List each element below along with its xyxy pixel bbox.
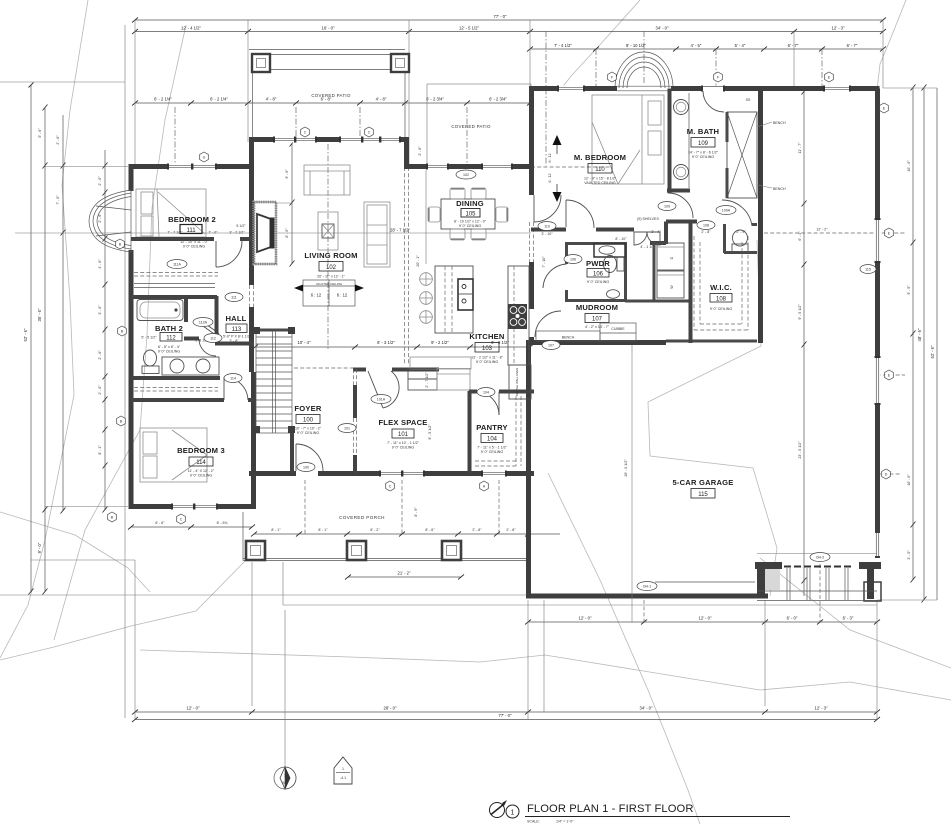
svg-text:9' 0" CEILING: 9' 0" CEILING xyxy=(392,446,415,450)
svg-text:2' - 7 1/2": 2' - 7 1/2" xyxy=(425,372,429,388)
svg-text:HALL: HALL xyxy=(225,314,246,323)
svg-text:DOUBLE WALL OVEN: DOUBLE WALL OVEN xyxy=(515,368,519,396)
svg-text:1: 1 xyxy=(511,810,515,817)
svg-text:9' - 2 1/2": 9' - 2 1/2" xyxy=(431,340,449,345)
svg-text:10' - 4": 10' - 4" xyxy=(298,340,312,345)
svg-text:28' - 0": 28' - 0" xyxy=(384,706,398,711)
svg-text:5' - 6": 5' - 6" xyxy=(38,128,42,138)
svg-text:10' - 7" x 10' - 2": 10' - 7" x 10' - 2" xyxy=(295,427,322,431)
svg-text:6' - 2 1/4": 6' - 2 1/4" xyxy=(154,97,172,102)
svg-text:112: 112 xyxy=(210,337,216,341)
svg-text:9' 0" CEILING: 9' 0" CEILING xyxy=(476,360,499,364)
svg-text:112A: 112A xyxy=(199,321,208,325)
svg-text:2' - 8": 2' - 8" xyxy=(506,528,516,532)
svg-text:9' 0" CEILING: 9' 0" CEILING xyxy=(158,350,181,354)
svg-text:5 1/2": 5 1/2" xyxy=(236,224,246,228)
svg-text:9' - 5": 9' - 5" xyxy=(907,285,911,295)
svg-text:114: 114 xyxy=(230,377,236,381)
svg-text:9' 0" CEILING: 9' 0" CEILING xyxy=(587,280,610,284)
svg-text:SCALE:: SCALE: xyxy=(527,820,540,824)
svg-text:16' - 0": 16' - 0" xyxy=(907,474,911,486)
svg-text:W.I.C.: W.I.C. xyxy=(710,283,732,292)
svg-text:G: G xyxy=(203,156,206,160)
svg-text:104: 104 xyxy=(483,391,489,395)
svg-text:D: D xyxy=(670,256,674,259)
svg-text:9' - 5 1/2": 9' - 5 1/2" xyxy=(798,304,802,320)
svg-text:34' - 0": 34' - 0" xyxy=(656,26,670,31)
svg-text:8' - 1": 8' - 1" xyxy=(98,445,102,455)
svg-text:9' 0" CEILING: 9' 0" CEILING xyxy=(481,450,504,454)
svg-text:COVERED PORCH: COVERED PORCH xyxy=(339,515,385,520)
svg-text:101: 101 xyxy=(344,427,350,431)
svg-text:BENCH: BENCH xyxy=(773,187,786,191)
svg-text:6' - 2 3/4": 6' - 2 3/4" xyxy=(489,97,507,102)
svg-text:M. BATH: M. BATH xyxy=(687,127,719,136)
svg-text:CUBBIE: CUBBIE xyxy=(611,327,625,331)
svg-text:(5) SHELVES: (5) SHELVES xyxy=(637,217,659,221)
svg-text:3' - 0": 3' - 0" xyxy=(907,550,911,560)
svg-text:104: 104 xyxy=(487,437,498,443)
svg-text:9' 0" CEILING: 9' 0" CEILING xyxy=(183,245,206,249)
svg-text:2' - 6": 2' - 6" xyxy=(418,146,422,156)
svg-text:11' - 4" X 12' - 2": 11' - 4" X 12' - 2" xyxy=(188,469,215,473)
svg-text:13' - 2 1/2" x 11' - 8": 13' - 2 1/2" x 11' - 8" xyxy=(471,356,504,360)
svg-text:PWDR: PWDR xyxy=(586,259,610,268)
svg-text:101A: 101A xyxy=(377,398,386,402)
svg-text:COVERED PATIO: COVERED PATIO xyxy=(311,93,351,98)
svg-text:12' - 3": 12' - 3" xyxy=(832,26,846,31)
svg-text:12' - 4 1/2": 12' - 4 1/2" xyxy=(181,26,201,31)
svg-text:FOYER: FOYER xyxy=(294,404,321,413)
svg-text:8' - 10 1/2" x 12' - 0": 8' - 10 1/2" x 12' - 0" xyxy=(454,220,487,224)
svg-text:112: 112 xyxy=(166,336,176,342)
svg-text:OH-2: OH-2 xyxy=(816,556,825,560)
svg-text:1: 1 xyxy=(342,767,344,771)
svg-text:12' - 5 1/2": 12' - 5 1/2" xyxy=(459,26,479,31)
svg-text:9' 0" CEILING: 9' 0" CEILING xyxy=(297,431,320,435)
svg-text:109A: 109A xyxy=(722,209,731,213)
svg-text:12' - 0": 12' - 0" xyxy=(579,616,593,621)
svg-text:OH-1: OH-1 xyxy=(643,585,652,589)
svg-text:2' - 0": 2' - 0" xyxy=(98,385,102,395)
svg-text:102: 102 xyxy=(463,173,469,177)
svg-text:BENCH: BENCH xyxy=(562,336,575,340)
svg-text:9' 0" CEILING: 9' 0" CEILING xyxy=(710,307,733,311)
svg-text:9' - 6": 9' - 6" xyxy=(285,169,289,179)
svg-text:9' 0" CEILING: 9' 0" CEILING xyxy=(692,155,715,159)
svg-text:6' - 6¾: 6' - 6¾ xyxy=(217,521,229,525)
svg-text:1: 1 xyxy=(284,774,286,778)
svg-text:LIVING ROOM: LIVING ROOM xyxy=(304,251,357,260)
svg-text:9' 0" CEILING: 9' 0" CEILING xyxy=(190,474,213,478)
svg-text:7' - 11" x 5' - 1 1/2": 7' - 11" x 5' - 1 1/2" xyxy=(477,446,508,450)
svg-text:77' - 0": 77' - 0" xyxy=(499,713,513,718)
svg-text:6' - 8" x 8' - 4": 6' - 8" x 8' - 4" xyxy=(158,345,181,349)
svg-text:6 : 12: 6 : 12 xyxy=(548,174,552,183)
svg-text:C: C xyxy=(304,131,307,135)
svg-text:114: 114 xyxy=(196,460,206,466)
svg-text:6' - 7": 6' - 7" xyxy=(847,43,858,48)
svg-text:6' - 0": 6' - 0" xyxy=(787,616,798,621)
svg-text:115: 115 xyxy=(698,492,708,498)
svg-text:7' - 0": 7' - 0" xyxy=(208,231,218,235)
svg-text:2' - 8": 2' - 8" xyxy=(701,230,711,234)
svg-text:6' - 6": 6' - 6" xyxy=(155,521,165,525)
svg-text:113: 113 xyxy=(232,327,242,333)
svg-text:FLOOR PLAN 1 - FIRST FLOOR: FLOOR PLAN 1 - FIRST FLOOR xyxy=(527,803,694,815)
svg-text:102: 102 xyxy=(326,265,337,271)
svg-text:2' - 6": 2' - 6" xyxy=(98,350,102,360)
svg-text:111: 111 xyxy=(186,228,196,234)
svg-text:5'-0" P X 8'-1 1/2": 5'-0" P X 8'-1 1/2" xyxy=(223,335,252,339)
svg-text:D: D xyxy=(885,473,888,477)
svg-text:KITCHEN: KITCHEN xyxy=(469,332,504,341)
svg-text:8' - 2": 8' - 2" xyxy=(370,528,380,532)
svg-text:110: 110 xyxy=(544,225,550,229)
svg-text:VAULTED CEILING: VAULTED CEILING xyxy=(584,181,616,185)
svg-text:109: 109 xyxy=(664,205,670,209)
svg-text:9' - 5 1/2": 9' - 5 1/2" xyxy=(428,424,432,440)
svg-text:COVERED PATIO: COVERED PATIO xyxy=(451,124,491,129)
svg-text:FLEX SPACE: FLEX SPACE xyxy=(378,418,427,427)
svg-text:16' - 0": 16' - 0" xyxy=(322,26,336,31)
svg-text:8' - 6": 8' - 6" xyxy=(425,528,435,532)
svg-text:111A: 111A xyxy=(173,263,181,267)
svg-text:3' - 2 1/2": 3' - 2 1/2" xyxy=(229,231,245,235)
svg-text:3' - 6": 3' - 6" xyxy=(98,305,102,315)
svg-text:2' - 8": 2' - 8" xyxy=(472,528,482,532)
svg-text:BENCH: BENCH xyxy=(773,121,786,125)
svg-text:21' - 2": 21' - 2" xyxy=(398,571,412,576)
svg-text:8' - 1": 8' - 1" xyxy=(271,528,281,532)
svg-text:4' - 8": 4' - 8" xyxy=(376,97,387,102)
svg-text:20' - 11" x 12' - 1": 20' - 11" x 12' - 1" xyxy=(317,275,346,279)
svg-text:111: 111 xyxy=(231,296,236,300)
svg-text:C: C xyxy=(368,131,371,135)
svg-text:108: 108 xyxy=(703,224,709,228)
svg-text:8' - 0": 8' - 0" xyxy=(285,228,289,238)
svg-text:12' - 0": 12' - 0" xyxy=(187,706,201,711)
svg-text:SS: SS xyxy=(746,98,751,102)
svg-text:6' - 2 3/4": 6' - 2 3/4" xyxy=(426,97,444,102)
svg-text:2' - 0": 2' - 0" xyxy=(98,176,102,186)
svg-text:106: 106 xyxy=(593,272,604,278)
svg-text:7' - 11" x 10' - 1 1/2": 7' - 11" x 10' - 1 1/2" xyxy=(387,441,420,445)
svg-text:3' - 10": 3' - 10" xyxy=(541,232,553,236)
svg-text:5' - 5 1/2": 5' - 5 1/2" xyxy=(141,336,157,340)
svg-text:20' - 1": 20' - 1" xyxy=(416,255,420,267)
svg-text:26' - 0 1/2": 26' - 0 1/2" xyxy=(624,459,628,477)
svg-text:100: 100 xyxy=(303,418,314,424)
svg-text:103: 103 xyxy=(482,346,493,352)
svg-text:5-CAR GARAGE: 5-CAR GARAGE xyxy=(672,478,733,487)
svg-text:8' - 10 1/2": 8' - 10 1/2" xyxy=(626,43,646,48)
svg-text:9' 0" CEILING: 9' 0" CEILING xyxy=(459,224,482,228)
svg-text:110: 110 xyxy=(595,167,605,173)
svg-text:107: 107 xyxy=(592,317,603,323)
svg-text:VAULTED CEILING: VAULTED CEILING xyxy=(316,282,343,286)
svg-text:107: 107 xyxy=(548,344,554,348)
svg-text:11' - 7": 11' - 7" xyxy=(798,142,802,154)
svg-text:8' - 10": 8' - 10" xyxy=(615,237,627,241)
svg-text:C: C xyxy=(180,518,183,522)
svg-text:52' - 6": 52' - 6" xyxy=(930,345,935,359)
svg-text:23' - 0 1/2": 23' - 0 1/2" xyxy=(798,441,802,459)
svg-text:4' - 6": 4' - 6" xyxy=(98,259,102,269)
svg-text:108: 108 xyxy=(716,297,727,303)
svg-text:W: W xyxy=(670,285,674,289)
svg-text:12' - 3": 12' - 3" xyxy=(815,706,829,711)
svg-text:109: 109 xyxy=(698,141,709,147)
svg-text:9' - 0": 9' - 0" xyxy=(37,542,42,553)
svg-text:BEDROOM 2: BEDROOM 2 xyxy=(168,215,216,224)
svg-text:7' - 6": 7' - 6" xyxy=(56,195,60,205)
svg-text:48' - 6": 48' - 6" xyxy=(917,328,922,342)
svg-text:52' - 6": 52' - 6" xyxy=(23,328,28,342)
svg-text:12' - 9" x 15' - 8 1/2": 12' - 9" x 15' - 8 1/2" xyxy=(584,177,617,181)
svg-text:4' - 8": 4' - 8" xyxy=(266,97,277,102)
svg-text:4' - 2" x 13' - 7": 4' - 2" x 13' - 7" xyxy=(585,325,610,329)
svg-text:35' - 6": 35' - 6" xyxy=(37,308,42,322)
svg-text:14' - 7" x 8' - 6 1/2": 14' - 7" x 8' - 6 1/2" xyxy=(688,151,719,155)
svg-text:12' - 2": 12' - 2" xyxy=(816,228,828,232)
svg-text:7' - 10": 7' - 10" xyxy=(542,256,546,268)
svg-text:6' - 3 1/2": 6' - 3 1/2" xyxy=(377,340,395,345)
svg-text:5' - 4": 5' - 4" xyxy=(735,43,746,48)
svg-text:115: 115 xyxy=(865,268,871,272)
svg-text:C: C xyxy=(389,485,392,489)
svg-text:34' - 0": 34' - 0" xyxy=(640,706,654,711)
svg-text:6' - 7": 6' - 7" xyxy=(788,43,799,48)
svg-text:8' - 1": 8' - 1" xyxy=(318,528,328,532)
svg-text:7' - 4 1/2": 7' - 4 1/2" xyxy=(554,43,572,48)
svg-text:28' - 7 1/2": 28' - 7 1/2" xyxy=(390,228,410,233)
svg-text:-4.1: -4.1 xyxy=(340,776,346,780)
svg-text:105: 105 xyxy=(465,212,476,218)
svg-text:MUDROOM: MUDROOM xyxy=(576,303,618,312)
svg-text:12' - 0": 12' - 0" xyxy=(699,616,713,621)
svg-text:7' - 7 1/2": 7' - 7 1/2" xyxy=(167,231,183,235)
svg-text:6' - 3": 6' - 3" xyxy=(843,616,854,621)
svg-text:6 : 12: 6 : 12 xyxy=(311,293,322,298)
svg-text:2' - 4": 2' - 4" xyxy=(651,230,661,234)
svg-text:101: 101 xyxy=(398,432,409,438)
svg-text:BATH 2: BATH 2 xyxy=(155,324,183,333)
svg-text:6 : 12: 6 : 12 xyxy=(548,154,552,163)
svg-text:1/4" = 1'-0": 1/4" = 1'-0" xyxy=(556,820,574,824)
svg-text:M. BEDROOM: M. BEDROOM xyxy=(574,153,626,162)
svg-text:DINING: DINING xyxy=(456,199,484,208)
svg-text:4' - 5": 4' - 5" xyxy=(691,43,702,48)
svg-text:16' - 0": 16' - 0" xyxy=(907,160,911,172)
svg-text:8' - 9": 8' - 9" xyxy=(414,507,418,517)
svg-text:77' - 0": 77' - 0" xyxy=(494,14,508,19)
svg-text:PANTRY: PANTRY xyxy=(476,423,508,432)
svg-text:6' - 4": 6' - 4" xyxy=(798,231,802,241)
svg-text:BEDROOM 3: BEDROOM 3 xyxy=(177,446,225,455)
svg-text:5.1: 5.1 xyxy=(283,781,288,785)
svg-text:100: 100 xyxy=(303,466,309,470)
svg-text:2' - 6": 2' - 6" xyxy=(56,135,60,145)
svg-text:6' - 2 1/4": 6' - 2 1/4" xyxy=(210,97,228,102)
svg-text:6 : 12: 6 : 12 xyxy=(337,293,348,298)
svg-text:106: 106 xyxy=(570,258,576,262)
